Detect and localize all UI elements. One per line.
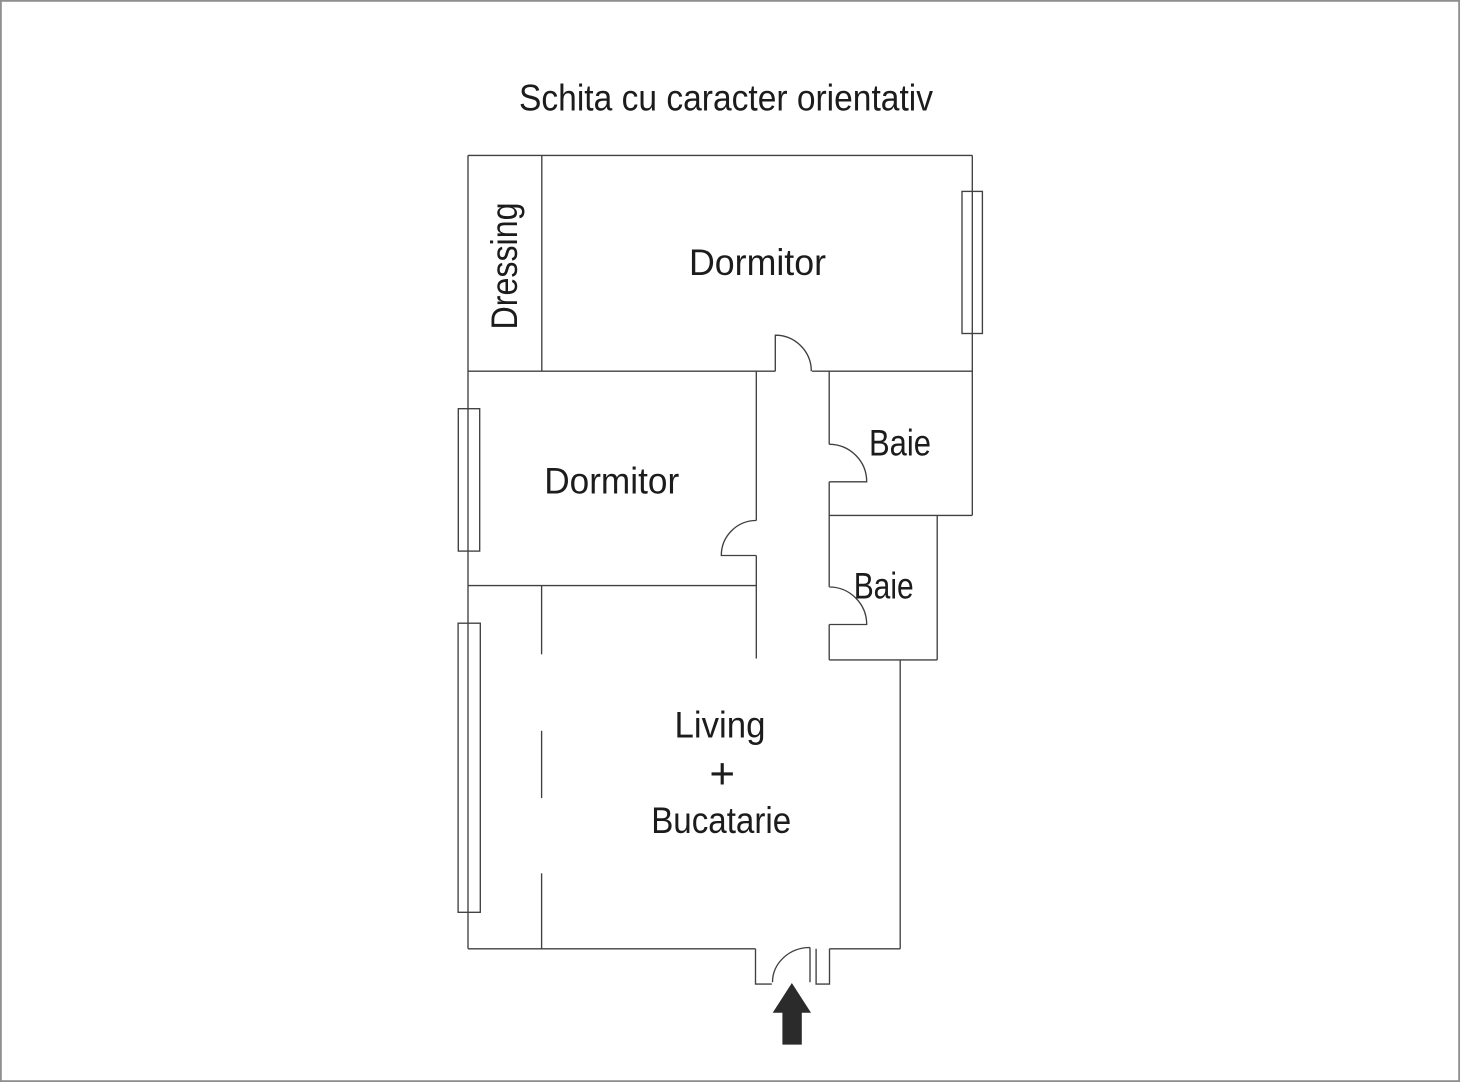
svg-text:Living: Living (675, 705, 766, 746)
svg-text:Dormitor: Dormitor (689, 242, 826, 283)
svg-text:Baie: Baie (854, 566, 914, 607)
svg-text:Dressing: Dressing (484, 203, 525, 330)
svg-text:Bucatarie: Bucatarie (651, 800, 791, 841)
svg-text:Dormitor: Dormitor (544, 461, 679, 502)
svg-text:+: + (709, 750, 735, 799)
svg-text:Schita cu caracter orientativ: Schita cu caracter orientativ (519, 77, 933, 118)
svg-text:Baie: Baie (869, 422, 931, 463)
